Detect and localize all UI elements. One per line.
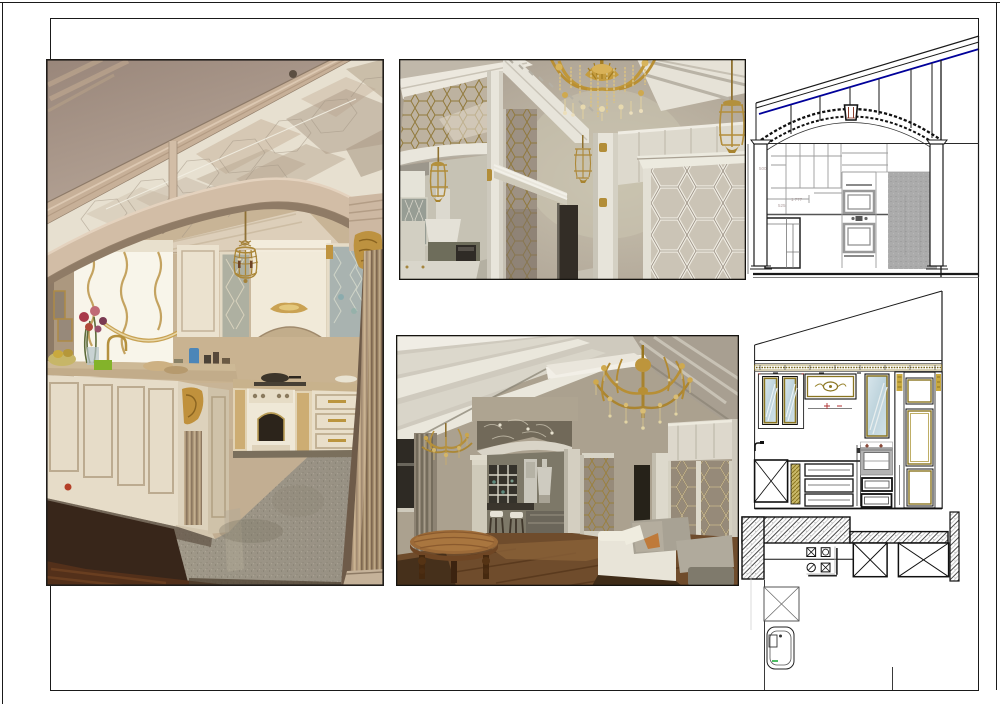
- svg-text:525: 525: [778, 203, 786, 208]
- svg-text:1 777: 1 777: [791, 197, 803, 202]
- svg-text:500: 500: [759, 166, 767, 171]
